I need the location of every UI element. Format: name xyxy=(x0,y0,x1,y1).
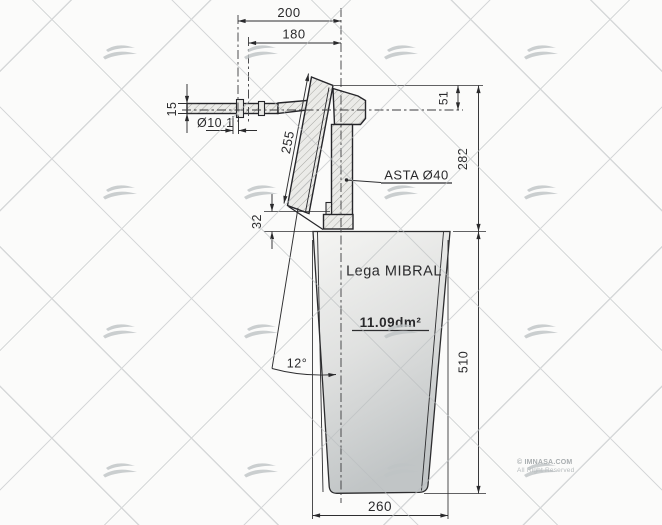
dim-282-label: 282 xyxy=(456,148,470,170)
rudder-shaft xyxy=(332,125,353,216)
technical-drawing-page: 200 180 15 Ø10.1 255 51 282 ASTA Ø40 32 … xyxy=(0,0,662,525)
dim-200-label: 200 xyxy=(277,5,300,20)
dim-32-label: 32 xyxy=(250,214,264,229)
shaft-leader-dot xyxy=(345,178,348,181)
dim-260-label: 260 xyxy=(368,499,392,514)
rudder-drawing: 200 180 15 Ø10.1 255 51 282 ASTA Ø40 32 … xyxy=(0,0,662,525)
dim-510-label: 510 xyxy=(457,351,471,373)
shaft-head-block xyxy=(333,89,366,125)
dim-hole-label: Ø10.1 xyxy=(197,116,234,130)
dim-51-label: 51 xyxy=(437,91,451,105)
material-label: Lega MIBRAL xyxy=(346,264,442,280)
shaft-step xyxy=(326,203,332,215)
shaft-boss xyxy=(324,215,354,230)
shaft-label: ASTA Ø40 xyxy=(384,168,448,183)
tiller-bolt-2 xyxy=(259,102,265,116)
dim-180-label: 180 xyxy=(282,27,305,42)
dim-15-label: 15 xyxy=(165,102,179,117)
area-label: 11.09dm² xyxy=(360,315,422,330)
rake-angle-line xyxy=(272,208,298,369)
rudder-head-parts xyxy=(187,77,366,230)
rake-angle-label: 12° xyxy=(287,357,307,371)
